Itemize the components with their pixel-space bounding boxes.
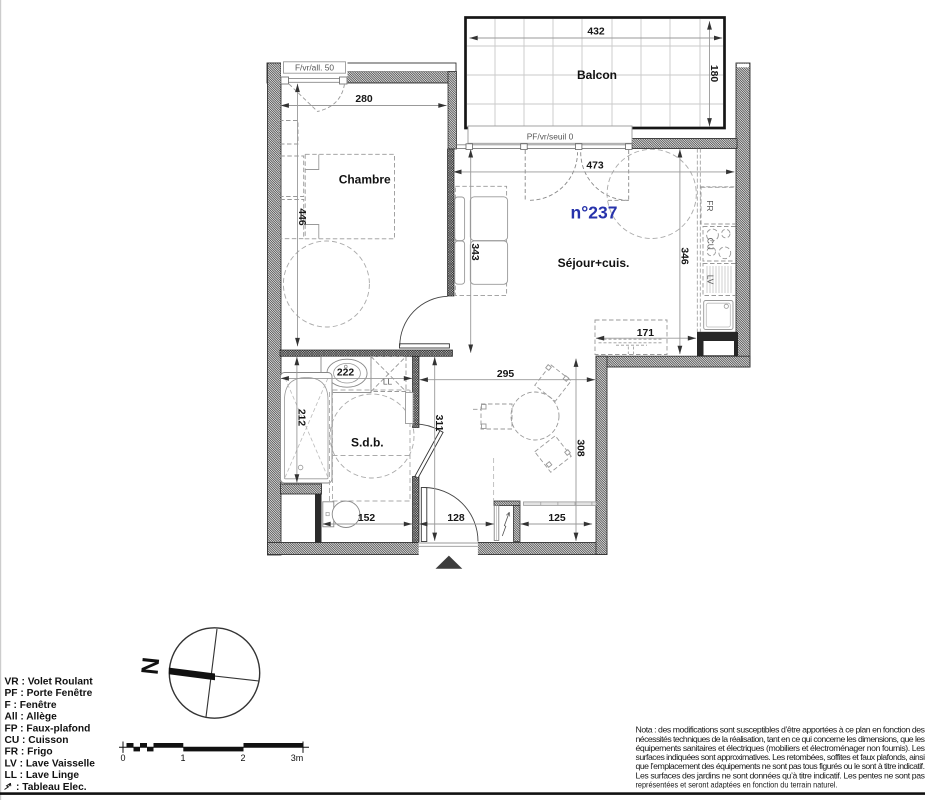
svg-text:All : Allège: All : Allège	[5, 712, 58, 723]
svg-text:432: 432	[587, 27, 605, 38]
svg-text:343: 343	[469, 243, 480, 261]
svg-text:PF/vr/seuil 0: PF/vr/seuil 0	[527, 132, 574, 142]
svg-text:LL : Lave Linge: LL : Lave Linge	[5, 770, 80, 781]
svg-text:222: 222	[337, 367, 355, 378]
svg-text:S.d.b.: S.d.b.	[351, 436, 384, 450]
svg-text:171: 171	[637, 328, 655, 339]
svg-text:LV: LV	[706, 275, 716, 285]
svg-text:346: 346	[678, 247, 689, 265]
svg-text:125: 125	[548, 513, 566, 524]
svg-text:446: 446	[296, 208, 307, 226]
svg-text:CU : Cuisson: CU : Cuisson	[5, 735, 69, 746]
svg-text:180: 180	[708, 65, 719, 83]
svg-text:: Tableau Elec.: : Tableau Elec.	[16, 782, 87, 793]
svg-text:311: 311	[433, 415, 444, 432]
svg-text:FR: FR	[705, 200, 715, 211]
svg-text:2: 2	[240, 753, 245, 763]
svg-text:0: 0	[120, 753, 125, 763]
svg-text:Séjour+cuis.: Séjour+cuis.	[558, 256, 630, 270]
svg-text:F : Fenêtre: F : Fenêtre	[5, 700, 57, 711]
svg-text:FP : Faux-plafond: FP : Faux-plafond	[5, 723, 91, 734]
svg-text:CU: CU	[706, 238, 716, 250]
svg-text:N: N	[137, 656, 166, 676]
svg-text:128: 128	[447, 513, 465, 524]
svg-text:308: 308	[575, 439, 586, 457]
svg-text:Chambre: Chambre	[339, 173, 391, 187]
svg-text:FR : Frigo: FR : Frigo	[5, 747, 53, 758]
svg-text:F/vr/all. 50: F/vr/all. 50	[295, 62, 334, 72]
svg-text:212: 212	[295, 409, 306, 427]
svg-text:n°237: n°237	[571, 203, 618, 223]
svg-text:280: 280	[355, 94, 373, 105]
svg-text:295: 295	[497, 369, 515, 380]
svg-text:PF : Porte Fenêtre: PF : Porte Fenêtre	[5, 688, 93, 699]
svg-text:Balcon: Balcon	[577, 68, 617, 82]
svg-text:VR : Volet Roulant: VR : Volet Roulant	[5, 677, 94, 688]
svg-text:3m: 3m	[291, 753, 304, 763]
svg-text:représentées et seront adaptée: représentées et seront adaptées en fonct…	[636, 780, 838, 790]
svg-text:473: 473	[586, 160, 604, 171]
svg-text:152: 152	[358, 513, 376, 524]
svg-text:LV : Lave Vaisselle: LV : Lave Vaisselle	[5, 758, 96, 769]
svg-text:1: 1	[180, 753, 185, 763]
